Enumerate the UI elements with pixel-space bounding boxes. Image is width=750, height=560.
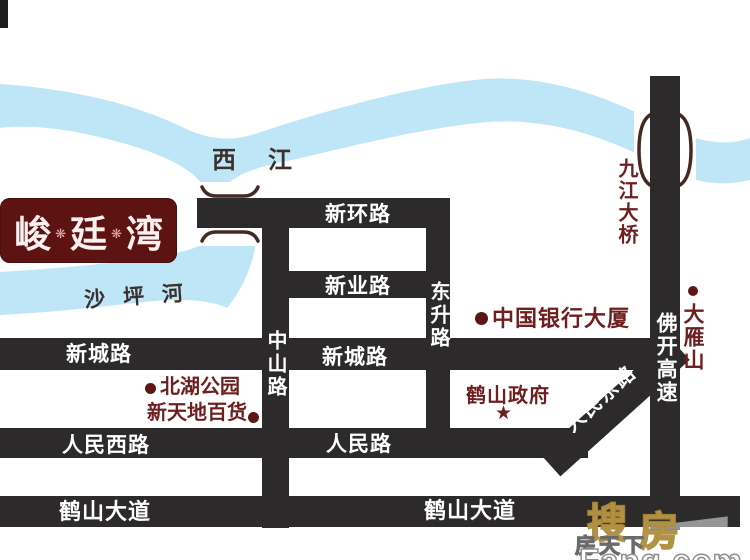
road-label-zhongshan: 中山路 bbox=[264, 330, 286, 399]
government-star-icon: ★ bbox=[495, 404, 512, 424]
road-fokai bbox=[650, 76, 680, 530]
jiujiang-bridge-label: 九江大桥 bbox=[615, 158, 636, 246]
road-label-xincheng-mid: 新城路 bbox=[322, 346, 388, 369]
road-xinhuan bbox=[197, 198, 450, 228]
road-label-dongsheng: 东升路 bbox=[427, 281, 449, 350]
beihu-park-dot-icon bbox=[145, 383, 156, 394]
project-logo-char: 湾 bbox=[126, 204, 163, 258]
road-label-xinhuan: 新环路 bbox=[325, 203, 391, 226]
beihu-park-label: 北湖公园 bbox=[160, 377, 240, 398]
road-label-xinye: 新业路 bbox=[325, 275, 391, 298]
xintiandi-label: 新天地百货 bbox=[147, 403, 247, 424]
watermark-fang: 搜 房 房天下 Fang.com bbox=[555, 500, 750, 560]
frame-artifact bbox=[0, 0, 8, 28]
xijiang-label: 西江 bbox=[212, 140, 324, 175]
dayanshan-label: 大雁山 bbox=[681, 303, 703, 372]
road-label-renminxi: 人民西路 bbox=[62, 434, 150, 457]
flower-separator-icon: ❋ bbox=[111, 220, 122, 242]
project-logo: 峻 ❋ 廷 ❋ 湾 bbox=[0, 198, 177, 263]
project-logo-char: 峻 bbox=[14, 204, 51, 258]
road-label-xincheng-west: 新城路 bbox=[66, 343, 132, 366]
bank-dot-icon bbox=[475, 312, 488, 325]
map-canvas: 西江 沙坪河 新环路 新业路 新城路 新城路 人民西路 人民路 鹤山大道 鹤山大… bbox=[0, 0, 750, 560]
dayanshan-dot-icon bbox=[688, 286, 698, 296]
project-logo-char: 廷 bbox=[70, 204, 107, 258]
watermark-brand-en: Fang.com bbox=[579, 542, 743, 560]
road-label-heshan-mid: 鹤山大道 bbox=[424, 499, 516, 523]
xintiandi-dot-icon bbox=[248, 412, 259, 423]
road-label-heshan-west: 鹤山大道 bbox=[59, 500, 151, 524]
flower-separator-icon: ❋ bbox=[55, 220, 66, 242]
road-label-renmin: 人民路 bbox=[326, 433, 392, 456]
road-label-fokai: 佛开高速 bbox=[654, 312, 677, 404]
bank-label: 中国银行大厦 bbox=[492, 307, 630, 330]
